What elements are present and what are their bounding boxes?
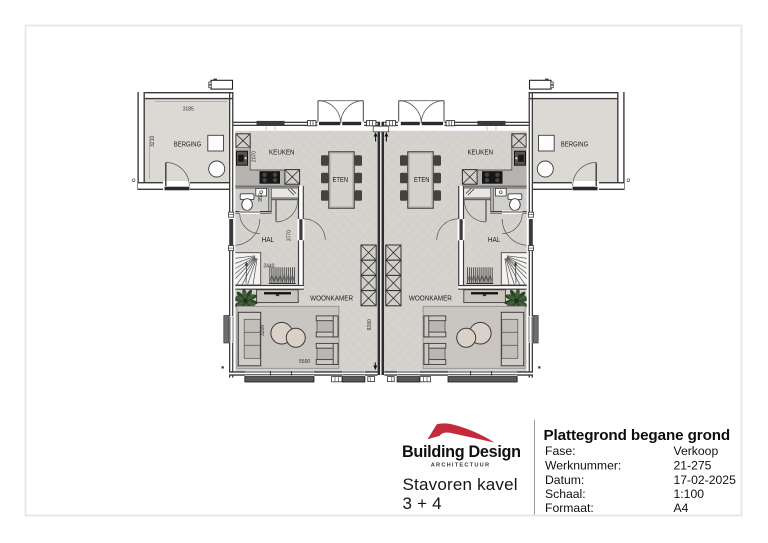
svg-text:5500: 5500	[299, 359, 310, 365]
svg-text:KEUKEN: KEUKEN	[269, 150, 295, 157]
svg-text:3200: 3200	[260, 325, 266, 336]
svg-text:Datum:: Datum:	[545, 473, 584, 487]
svg-text:Formaat:: Formaat:	[545, 501, 594, 515]
svg-text:ETEN: ETEN	[333, 175, 349, 184]
svg-text:1:100: 1:100	[674, 487, 705, 501]
svg-text:HAL: HAL	[262, 235, 275, 244]
svg-text:WOONKAMER: WOONKAMER	[409, 295, 452, 302]
svg-text:KEUKEN: KEUKEN	[467, 150, 493, 157]
svg-text:WOONKAMER: WOONKAMER	[310, 295, 353, 302]
svg-text:3210: 3210	[150, 136, 156, 147]
svg-text:ARCHITECTUUR: ARCHITECTUUR	[431, 463, 491, 469]
svg-text:Stavoren kavel: Stavoren kavel	[403, 475, 518, 494]
svg-text:3770: 3770	[286, 230, 292, 241]
svg-text:3185: 3185	[183, 106, 194, 112]
svg-text:21-275: 21-275	[674, 458, 712, 472]
svg-text:9280: 9280	[367, 319, 373, 330]
svg-text:17-02-2025: 17-02-2025	[674, 473, 737, 487]
svg-text:2070: 2070	[251, 151, 257, 162]
svg-text:Plattegrond begane grond: Plattegrond begane grond	[544, 427, 731, 444]
svg-text:Verkoop: Verkoop	[674, 444, 719, 458]
svg-text:BERGING: BERGING	[174, 141, 202, 148]
svg-text:HAL: HAL	[488, 235, 501, 244]
svg-text:A4: A4	[674, 501, 689, 515]
svg-text:950: 950	[258, 193, 264, 202]
svg-text:3 + 4: 3 + 4	[403, 494, 442, 513]
svg-text:Schaal:: Schaal:	[545, 487, 586, 501]
svg-text:ETEN: ETEN	[414, 175, 430, 184]
svg-text:2440: 2440	[263, 264, 274, 270]
svg-text:Fase:: Fase:	[545, 444, 575, 458]
svg-text:Building Design: Building Design	[402, 443, 521, 461]
svg-text:Werknummer:: Werknummer:	[545, 458, 621, 472]
svg-text:BERGING: BERGING	[561, 141, 589, 148]
